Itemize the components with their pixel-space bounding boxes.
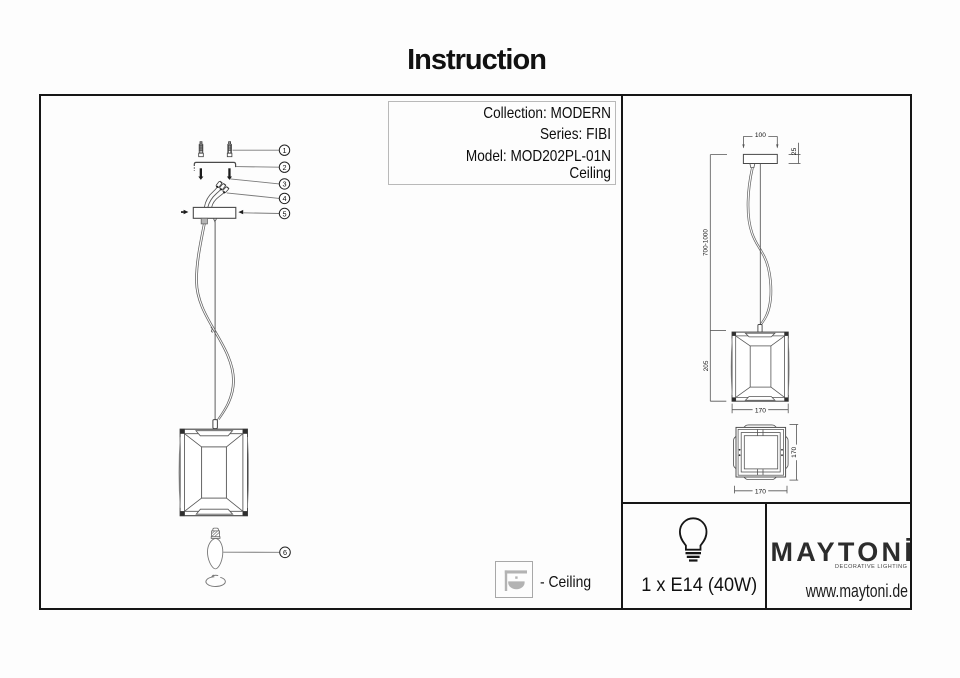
svg-text:170: 170 [755,407,766,414]
svg-text:3: 3 [282,180,286,189]
svg-text:4: 4 [282,194,286,203]
svg-text:5: 5 [282,209,286,218]
svg-text:205: 205 [703,360,710,371]
svg-text:700-1000: 700-1000 [703,229,710,256]
svg-text:1: 1 [282,146,286,155]
svg-text:100: 100 [755,132,766,139]
svg-text:25: 25 [791,147,798,155]
svg-text:6: 6 [283,548,287,557]
svg-text:170: 170 [791,446,798,457]
svg-text:2: 2 [282,163,286,172]
svg-text:170: 170 [755,488,766,495]
